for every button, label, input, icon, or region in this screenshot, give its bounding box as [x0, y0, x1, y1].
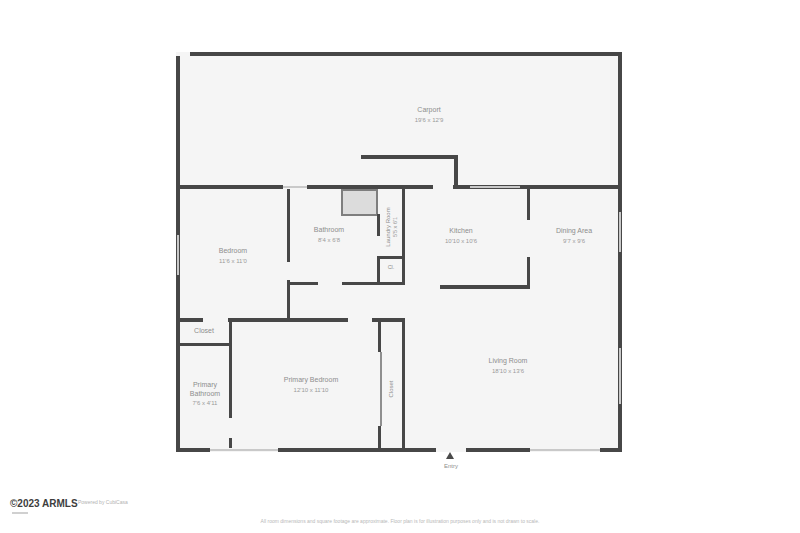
laundry-label: Laundry Room 5'5 x 6'1	[384, 207, 400, 246]
wall	[372, 318, 405, 322]
wall	[377, 214, 380, 236]
wall	[466, 448, 530, 452]
entry-label: Entry	[444, 463, 458, 469]
wall	[176, 343, 232, 346]
room-name: Living Room	[489, 356, 528, 367]
wall	[402, 189, 405, 285]
window	[619, 212, 621, 252]
wall	[190, 52, 622, 56]
wall	[377, 256, 380, 282]
wall	[278, 448, 436, 452]
window	[470, 186, 520, 188]
floorplan-canvas: Carport 19'6 x 12'9 Bedroom 11'6 x 11'0 …	[0, 0, 800, 533]
closet-label: Closet	[194, 326, 214, 337]
wall	[527, 257, 530, 288]
shower	[341, 189, 378, 216]
entry-arrow-icon	[446, 452, 454, 459]
room-dims: 9'7 x 9'6	[556, 237, 592, 246]
room-name: Kitchen	[445, 226, 477, 237]
wall	[342, 282, 405, 285]
room-name: Primary Bedroom	[284, 375, 338, 386]
room-name: Bathroom	[314, 225, 344, 236]
wall	[229, 438, 232, 448]
carport-label: Carport 19'6 x 12'9	[415, 105, 444, 125]
room-name: Laundry Room	[384, 207, 392, 246]
dining-label: Dining Area 9'7 x 9'6	[556, 226, 592, 246]
window	[210, 449, 278, 451]
hall-closet-label: Cl.	[388, 264, 395, 270]
room-name: Dining Area	[556, 226, 592, 237]
room-dims: 18'10 x 13'6	[489, 367, 528, 376]
wall	[361, 155, 458, 159]
room-dims: 11'6 x 11'0	[219, 257, 247, 266]
wall	[440, 285, 530, 289]
window	[283, 186, 307, 188]
room-dims: 12'10 x 11'10	[284, 386, 338, 395]
wall	[287, 280, 290, 318]
wall	[454, 155, 458, 189]
room-dims: 10'10 x 10'6	[445, 237, 477, 246]
room-name: Primary	[190, 380, 220, 389]
room-dims: 7'6 x 4'11	[190, 399, 220, 407]
brand-watermark: ©2023 ARMLS	[10, 498, 78, 509]
wall	[287, 282, 318, 285]
wall	[378, 322, 381, 352]
wall	[228, 318, 348, 322]
room-name: Closet	[194, 326, 214, 337]
room-name: Carport	[415, 105, 444, 116]
window	[619, 348, 621, 404]
kitchen-label: Kitchen 10'10 x 10'6	[445, 226, 477, 246]
bathroom-label: Bathroom 8'4 x 6'8	[314, 225, 344, 245]
room-dims: 8'4 x 6'8	[314, 236, 344, 245]
wall	[378, 426, 381, 448]
primary-bathroom-label: Primary Bathroom 7'6 x 4'11	[190, 380, 220, 407]
room-name: Bedroom	[219, 246, 247, 257]
room-dims: 19'6 x 12'9	[415, 116, 444, 125]
disclaimer-text: All room dimensions and square footage a…	[261, 518, 540, 524]
primary-bedroom-label: Primary Bedroom 12'10 x 11'10	[284, 375, 338, 395]
wall	[600, 448, 622, 452]
room-name: Closet	[387, 380, 395, 397]
brand-note: Powered by CubiCasa	[78, 499, 128, 505]
wall	[377, 256, 405, 259]
wall	[229, 318, 232, 418]
sliding-door	[380, 352, 382, 426]
wall	[176, 448, 210, 452]
brand-underline	[12, 512, 28, 514]
wall	[527, 189, 530, 220]
wall	[287, 189, 290, 262]
wall	[402, 318, 405, 448]
bedroom-label: Bedroom 11'6 x 11'0	[219, 246, 247, 266]
wardrobe-label: Closet	[387, 380, 395, 397]
wall	[176, 185, 283, 189]
living-room-label: Living Room 18'10 x 13'6	[489, 356, 528, 376]
room-dims: 5'5 x 6'1	[392, 207, 400, 246]
window	[177, 235, 179, 275]
room-name: Bathroom	[190, 389, 220, 398]
window	[530, 449, 600, 451]
wall	[176, 318, 203, 322]
